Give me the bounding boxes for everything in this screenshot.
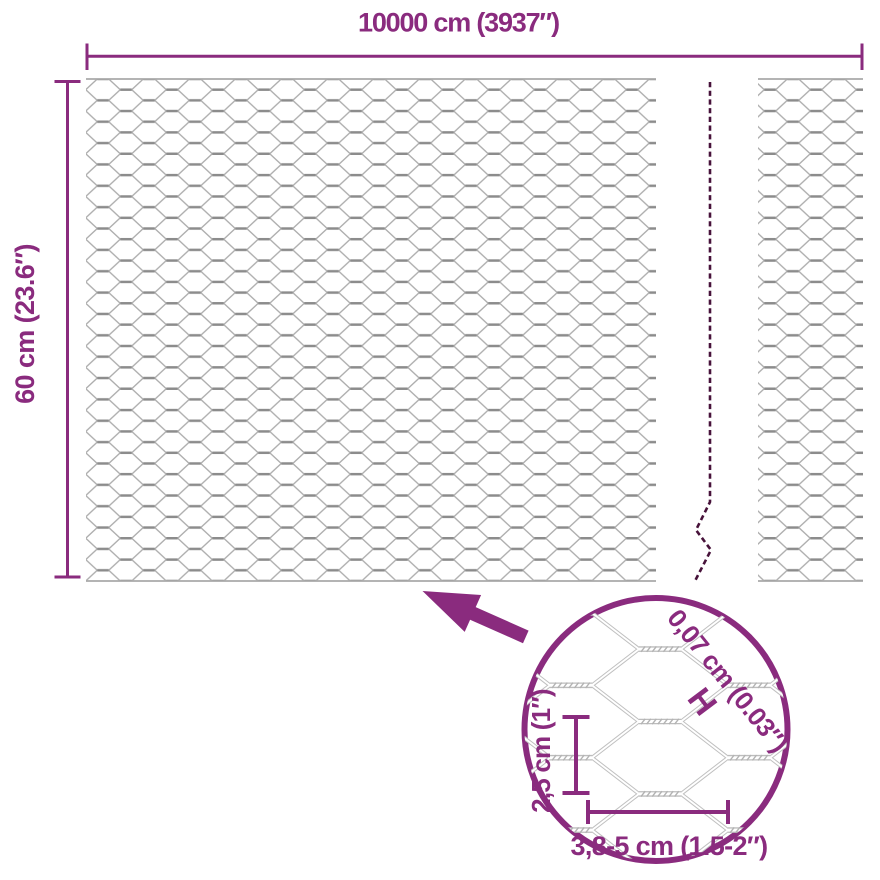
- svg-text:60 cm (23.6″): 60 cm (23.6″): [10, 244, 40, 404]
- svg-text:3,8-5 cm (1.5-2″): 3,8-5 cm (1.5-2″): [571, 831, 768, 861]
- svg-text:10000 cm (3937″): 10000 cm (3937″): [358, 8, 559, 38]
- svg-text:2,5 cm (1″): 2,5 cm (1″): [526, 689, 556, 813]
